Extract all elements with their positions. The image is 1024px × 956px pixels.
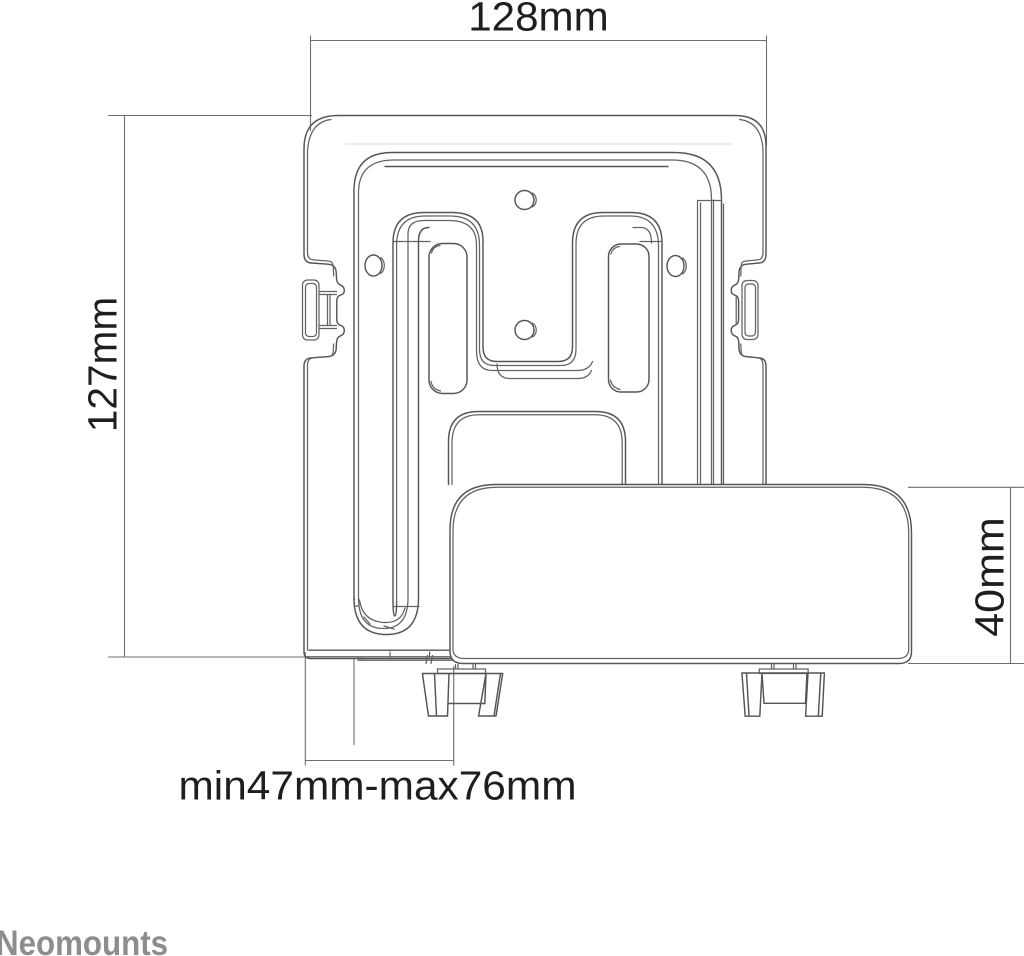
svg-text:127mm: 127mm [80, 297, 126, 433]
svg-text:Neomounts: Neomounts [0, 924, 168, 956]
svg-text:128mm: 128mm [468, 0, 609, 40]
svg-text:min47mm-max76mm: min47mm-max76mm [179, 763, 577, 809]
svg-text:40mm: 40mm [967, 517, 1013, 637]
